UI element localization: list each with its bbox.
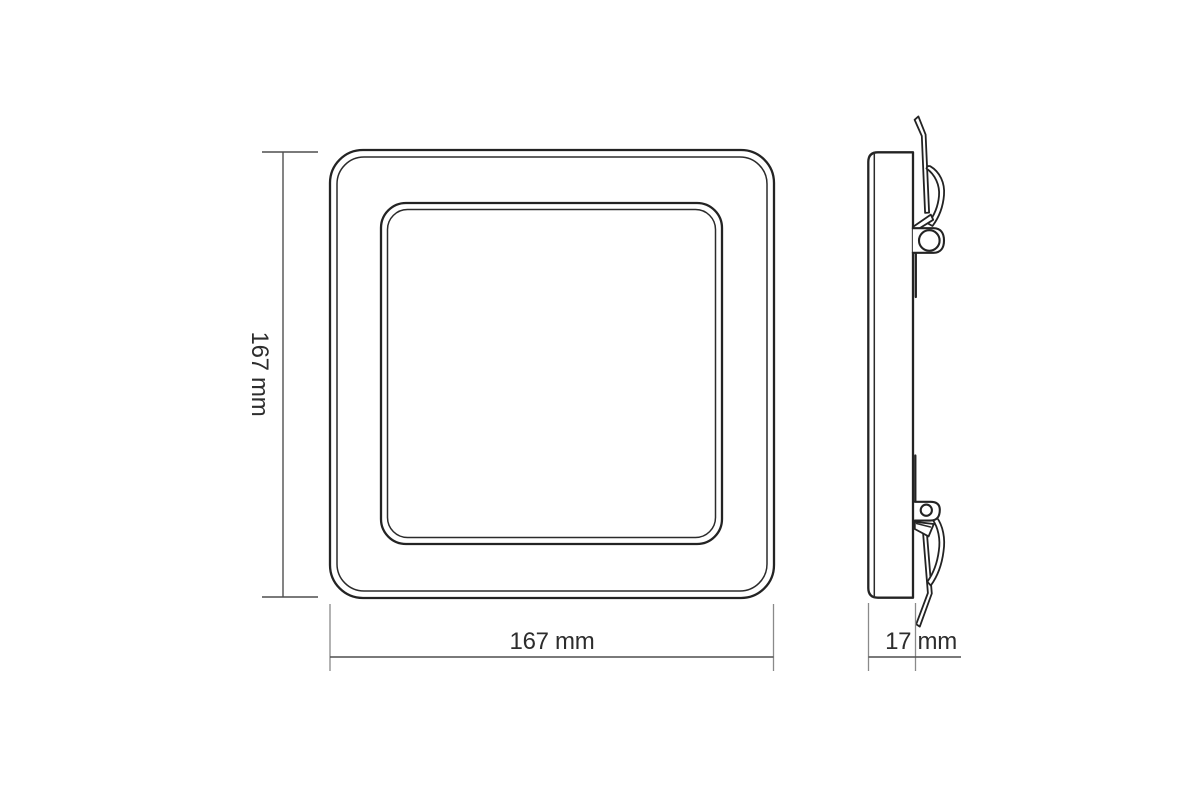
width-dimension-label: 167 mm xyxy=(510,628,595,655)
led-panel-dimension-drawing: 167 mm 167 mm 17 mm xyxy=(0,0,1200,800)
front-outer-frame-inner-line xyxy=(337,157,767,591)
bottom-clip-pivot xyxy=(921,505,932,516)
front-outer-frame-outline xyxy=(330,150,774,598)
width-dimension: 167 mm xyxy=(330,604,774,671)
height-dimension: 167 mm xyxy=(246,152,318,597)
height-dimension-label: 167 mm xyxy=(246,332,273,417)
side-view xyxy=(868,116,944,626)
top-spring-clip xyxy=(913,116,944,252)
technical-drawing-page: 167 mm 167 mm 17 mm xyxy=(0,0,1200,800)
depth-dimension: 17 mm xyxy=(869,603,962,671)
depth-dimension-label: 17 mm xyxy=(885,628,957,655)
top-clip-pivot xyxy=(919,230,940,251)
front-diffuser-outline xyxy=(381,203,722,544)
front-diffuser-inner-line xyxy=(388,210,716,538)
top-clip-lever xyxy=(915,116,930,212)
bottom-spring-clip xyxy=(915,502,944,627)
front-view xyxy=(330,150,774,598)
